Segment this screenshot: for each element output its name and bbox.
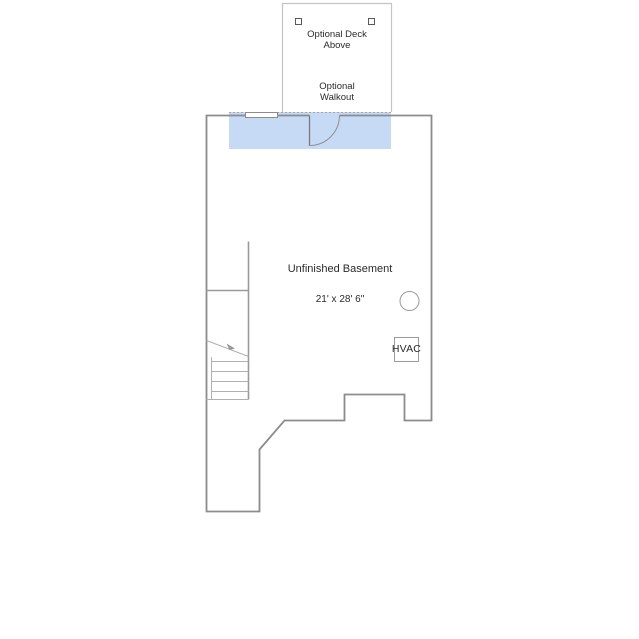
window: [246, 113, 278, 118]
room-name: Unfinished Basement: [241, 264, 439, 275]
floor-plan-page: Optional Deck Above Optional Walkout Unf…: [0, 0, 639, 639]
room-dimensions: 21' x 28' 6": [241, 294, 439, 305]
deck-post-left: [296, 19, 302, 25]
room-label: Unfinished Basement 21' x 28' 6": [241, 246, 439, 323]
hvac-label: HVAC: [388, 344, 425, 355]
deck-post-right: [369, 19, 375, 25]
stairs: [207, 341, 249, 400]
deck-label: Optional Deck Above: [282, 30, 392, 51]
walkout-label: Optional Walkout: [282, 82, 392, 103]
stair-treads: [207, 362, 249, 400]
stairs-break-line: [207, 341, 249, 357]
